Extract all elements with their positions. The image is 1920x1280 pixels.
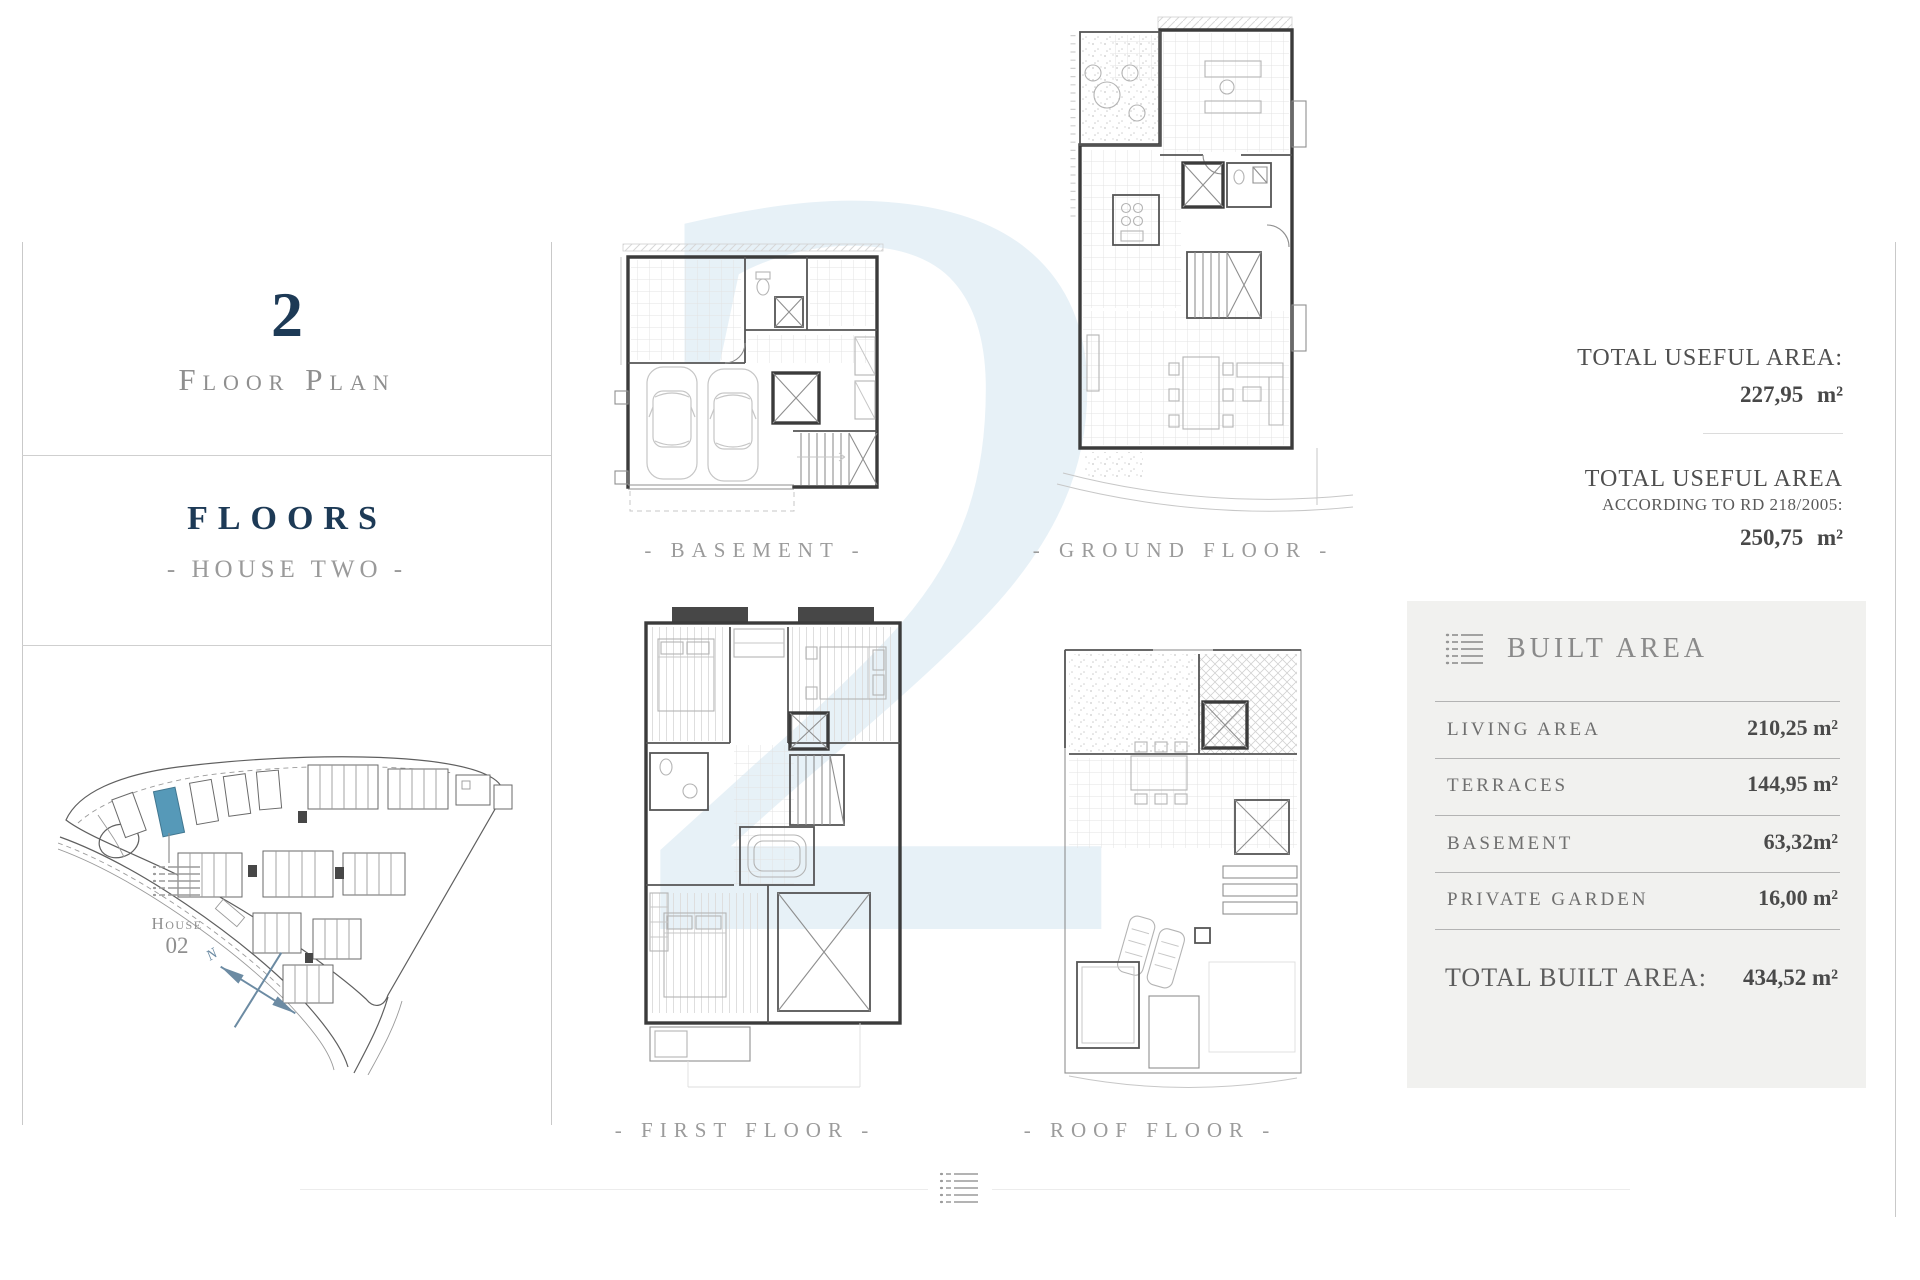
basement-floorplan-drawing (505, 195, 905, 540)
total-useful-area-rd-subtitle: ACCORDING TO RD 218/2005: (1423, 495, 1843, 515)
site-plan-drawing: House 02 N (58, 745, 528, 1075)
private-garden-label: PRIVATE GARDEN (1447, 889, 1649, 911)
terraces-value: 144,95 m² (1747, 771, 1838, 797)
living-area-label: LIVING AREA (1447, 719, 1601, 741)
private-garden-value: 16,00 m² (1758, 885, 1838, 911)
useful-area-divider (1703, 433, 1843, 434)
page-title: Floor Plan (23, 362, 551, 398)
total-useful-area-rd-block: TOTAL USEFUL AREA ACCORDING TO RD 218/20… (1423, 466, 1843, 551)
house-02-unit (153, 787, 184, 837)
total-built-area-value: 434,52 m² (1743, 965, 1838, 991)
total-built-area-label: TOTAL BUILT AREA: (1445, 963, 1707, 993)
built-area-divider (1435, 701, 1840, 702)
built-area-divider (1435, 929, 1840, 930)
ground-floorplan-drawing (1055, 5, 1355, 550)
basement-area-label: BASEMENT (1447, 833, 1573, 855)
built-area-panel: BUILT AREA LIVING AREA 210,25 m² TERRACE… (1407, 601, 1866, 1088)
right-page-rule (1895, 242, 1896, 1217)
roof-floor-label: - ROOF FLOOR - (1024, 1118, 1277, 1143)
total-useful-area-block: TOTAL USEFUL AREA: 227,95 m² (1423, 345, 1843, 408)
floor-plan-page: 2 2 Floor Plan FLOORS - HOUSE TWO - (0, 0, 1920, 1280)
sidebar-divider-2 (22, 645, 551, 646)
ground-floor-label: - GROUND FLOOR - (1033, 538, 1333, 563)
footer-list-icon (928, 1164, 992, 1217)
first-floorplan-drawing (628, 595, 918, 1100)
terraces-label: TERRACES (1447, 775, 1568, 797)
built-area-divider (1435, 758, 1840, 759)
compass-north-label: N (203, 945, 222, 965)
living-area-value: 210,25 m² (1747, 715, 1838, 741)
basement-label: - BASEMENT - (644, 538, 865, 563)
total-useful-area-rd-value: 250,75 m² (1423, 525, 1843, 551)
built-area-header: BUILT AREA (1445, 631, 1708, 667)
sidebar-divider-1 (22, 455, 551, 456)
built-area-divider (1435, 815, 1840, 816)
floors-subtitle: - HOUSE TWO - (23, 556, 551, 584)
total-useful-area-value: 227,95 m² (1423, 382, 1843, 408)
list-icon (1445, 631, 1485, 667)
page-number: 2 (23, 278, 551, 352)
built-area-title: BUILT AREA (1507, 633, 1708, 665)
built-area-divider (1435, 872, 1840, 873)
house-label: House (151, 914, 202, 933)
basement-area-value: 63,32m² (1764, 829, 1838, 855)
floors-title: FLOORS (23, 500, 551, 538)
first-floor-label: - FIRST FLOOR - (615, 1118, 875, 1143)
house-number-label: 02 (166, 933, 189, 958)
roof-floorplan-drawing (1053, 628, 1313, 1103)
total-useful-area-title: TOTAL USEFUL AREA: (1423, 345, 1843, 372)
total-useful-area-rd-title: TOTAL USEFUL AREA (1423, 466, 1843, 493)
